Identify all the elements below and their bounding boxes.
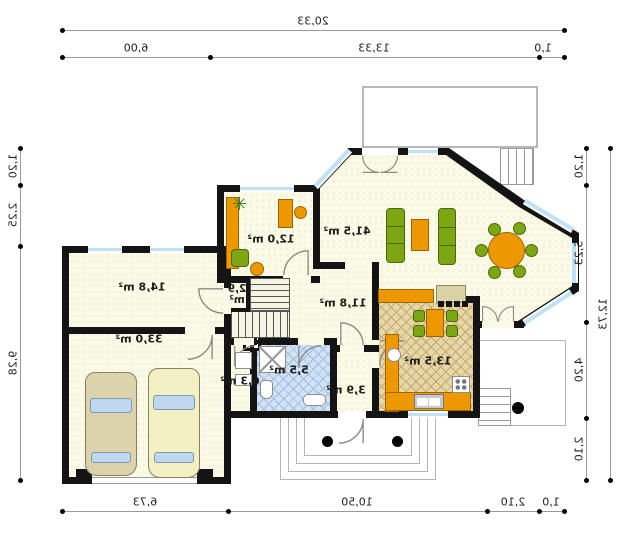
dim-left-seg: 2,25 xyxy=(7,203,20,228)
sofa xyxy=(438,208,456,265)
door-arc xyxy=(198,288,224,314)
dimension-dot xyxy=(18,146,23,151)
porch-column xyxy=(392,436,403,447)
desk-chair xyxy=(294,206,307,219)
room-label-room-above-garage: 14,8 m² xyxy=(118,281,165,294)
room-label-living: 41,5 m² xyxy=(323,225,370,238)
dimension-dot xyxy=(60,28,65,33)
dining-chair xyxy=(513,265,526,278)
door-opening xyxy=(340,345,364,352)
kitchen-chair xyxy=(446,325,458,337)
column-dot xyxy=(512,402,524,414)
dim-right-total: 12,73 xyxy=(597,298,610,330)
dimension-dot xyxy=(608,478,613,483)
dimension-dot xyxy=(60,55,65,60)
passage-opening xyxy=(345,262,372,269)
stairs-upper-flight xyxy=(250,278,290,311)
dining-chair xyxy=(475,244,488,257)
desk xyxy=(278,199,293,228)
terrace-outline-top xyxy=(362,86,538,148)
window xyxy=(240,185,294,192)
dim-right-seg: 5,23 xyxy=(573,241,586,266)
door-arc xyxy=(380,155,398,173)
room-label-kitchen: 13,5 m² xyxy=(404,355,451,368)
dimension-dot xyxy=(562,55,567,60)
kitchen-chair xyxy=(413,325,425,337)
dimension-dot xyxy=(60,509,65,514)
floor-plan: ✳ 12,0 m² 41,5 m² 14,8 m² 33,0 m² 2,9 m²… xyxy=(0,0,642,533)
dimension-dot xyxy=(584,320,589,325)
washbasin xyxy=(303,394,326,406)
cabinet-square xyxy=(438,301,444,307)
dim-top-seg: 1,0 xyxy=(534,42,552,55)
window xyxy=(88,246,122,253)
dimension-dot xyxy=(584,146,589,151)
window xyxy=(408,148,438,155)
dim-bottom-seg: 1,0 xyxy=(542,496,560,509)
dimension-dot xyxy=(537,55,542,60)
dimension-dot xyxy=(562,28,567,33)
appliance xyxy=(387,348,401,362)
dimension-dot xyxy=(608,146,613,151)
dim-top-seg: 13,33 xyxy=(358,42,390,55)
dining-table xyxy=(488,232,525,269)
dimension-line xyxy=(62,30,564,31)
washing-machine xyxy=(235,352,252,369)
stairs-lower-flight xyxy=(231,311,290,338)
window xyxy=(408,411,448,418)
room-label-hall: 11,8 m² xyxy=(319,297,366,310)
toilet xyxy=(260,380,273,399)
dimension-line xyxy=(610,148,611,480)
door-arc xyxy=(187,334,213,360)
dining-chair xyxy=(513,222,526,235)
car-rear-window xyxy=(91,452,131,463)
dimension-dot xyxy=(18,183,23,188)
dimension-dot xyxy=(584,183,589,188)
porch-column xyxy=(322,436,333,447)
cooktop xyxy=(452,376,470,393)
dimension-dot xyxy=(18,244,23,249)
door-arc xyxy=(283,250,309,276)
wall xyxy=(62,246,69,484)
side-table xyxy=(250,262,264,276)
garage-door xyxy=(80,477,213,484)
door-arc xyxy=(340,322,364,346)
door-arc xyxy=(362,155,380,173)
closet-wall xyxy=(231,308,250,312)
door-arc xyxy=(482,306,498,322)
room-label-bathroom: 5,5 m² xyxy=(269,364,309,377)
car-windshield xyxy=(90,398,132,413)
room-label-utility: 6,3 m² xyxy=(220,375,260,388)
room-label-study: 12,0 m² xyxy=(247,233,294,246)
dining-chair xyxy=(488,266,501,279)
dimension-dot xyxy=(537,509,542,514)
dim-left-seg: 1,20 xyxy=(7,154,20,179)
car-rear-window xyxy=(154,452,194,463)
dimension-dot xyxy=(584,478,589,483)
door-arc xyxy=(498,306,514,322)
sideboard xyxy=(378,289,434,303)
dim-bottom-seg: 2,10 xyxy=(501,496,526,509)
dining-chair xyxy=(525,244,538,257)
dimension-dot xyxy=(18,478,23,483)
dim-right-seg: 4,20 xyxy=(573,358,586,383)
door-opening xyxy=(362,148,398,155)
dim-bottom-seg: 10,50 xyxy=(341,496,373,509)
garage-door-post xyxy=(197,469,213,484)
door-opening xyxy=(185,327,215,334)
room-label-closet: 2,9 m² xyxy=(224,284,250,306)
dim-top-total: 20,33 xyxy=(297,15,329,28)
dim-top-seg: 6,00 xyxy=(124,42,149,55)
cabinet-square xyxy=(462,301,468,307)
dimension-line xyxy=(20,148,21,480)
dimension-line xyxy=(586,148,587,480)
kitchen-table xyxy=(426,309,444,337)
kitchen-chair xyxy=(446,310,458,322)
dim-right-seg: 1,20 xyxy=(573,154,586,179)
room-label-entry: 3,9 m² xyxy=(326,384,366,397)
dimension-dot xyxy=(208,55,213,60)
kitchen-sink xyxy=(414,394,444,409)
kitchen-chair xyxy=(413,310,425,322)
cabinet-square xyxy=(446,301,452,307)
entry-floor xyxy=(337,352,372,411)
dim-right-seg: 2,10 xyxy=(573,437,586,462)
window xyxy=(150,246,184,253)
dimension-line xyxy=(62,57,564,58)
front-door-arc xyxy=(338,418,364,444)
room-label-garage: 33,0 m² xyxy=(115,333,162,346)
car-windshield xyxy=(153,395,195,410)
armchair xyxy=(231,249,249,267)
wall xyxy=(313,185,320,269)
coffee-table xyxy=(411,219,429,251)
wall xyxy=(217,185,224,283)
exterior-steps-right xyxy=(478,388,511,426)
dimension-dot xyxy=(562,509,567,514)
sofa xyxy=(386,208,405,263)
exterior-steps-top-right xyxy=(500,148,534,185)
dimension-dot xyxy=(485,509,490,514)
dining-chair xyxy=(488,223,501,236)
dimension-dot xyxy=(226,509,231,514)
front-door-opening xyxy=(338,411,366,418)
dimension-dot xyxy=(584,416,589,421)
dim-left-seg: 9,28 xyxy=(7,351,20,376)
door-opening xyxy=(234,338,254,345)
plant-icon: ✳ xyxy=(232,196,247,214)
door-opening xyxy=(482,321,514,328)
wall xyxy=(473,296,480,418)
door-opening xyxy=(298,338,324,345)
cabinet-square xyxy=(454,301,460,307)
dim-bottom-seg: 6,73 xyxy=(133,496,158,509)
